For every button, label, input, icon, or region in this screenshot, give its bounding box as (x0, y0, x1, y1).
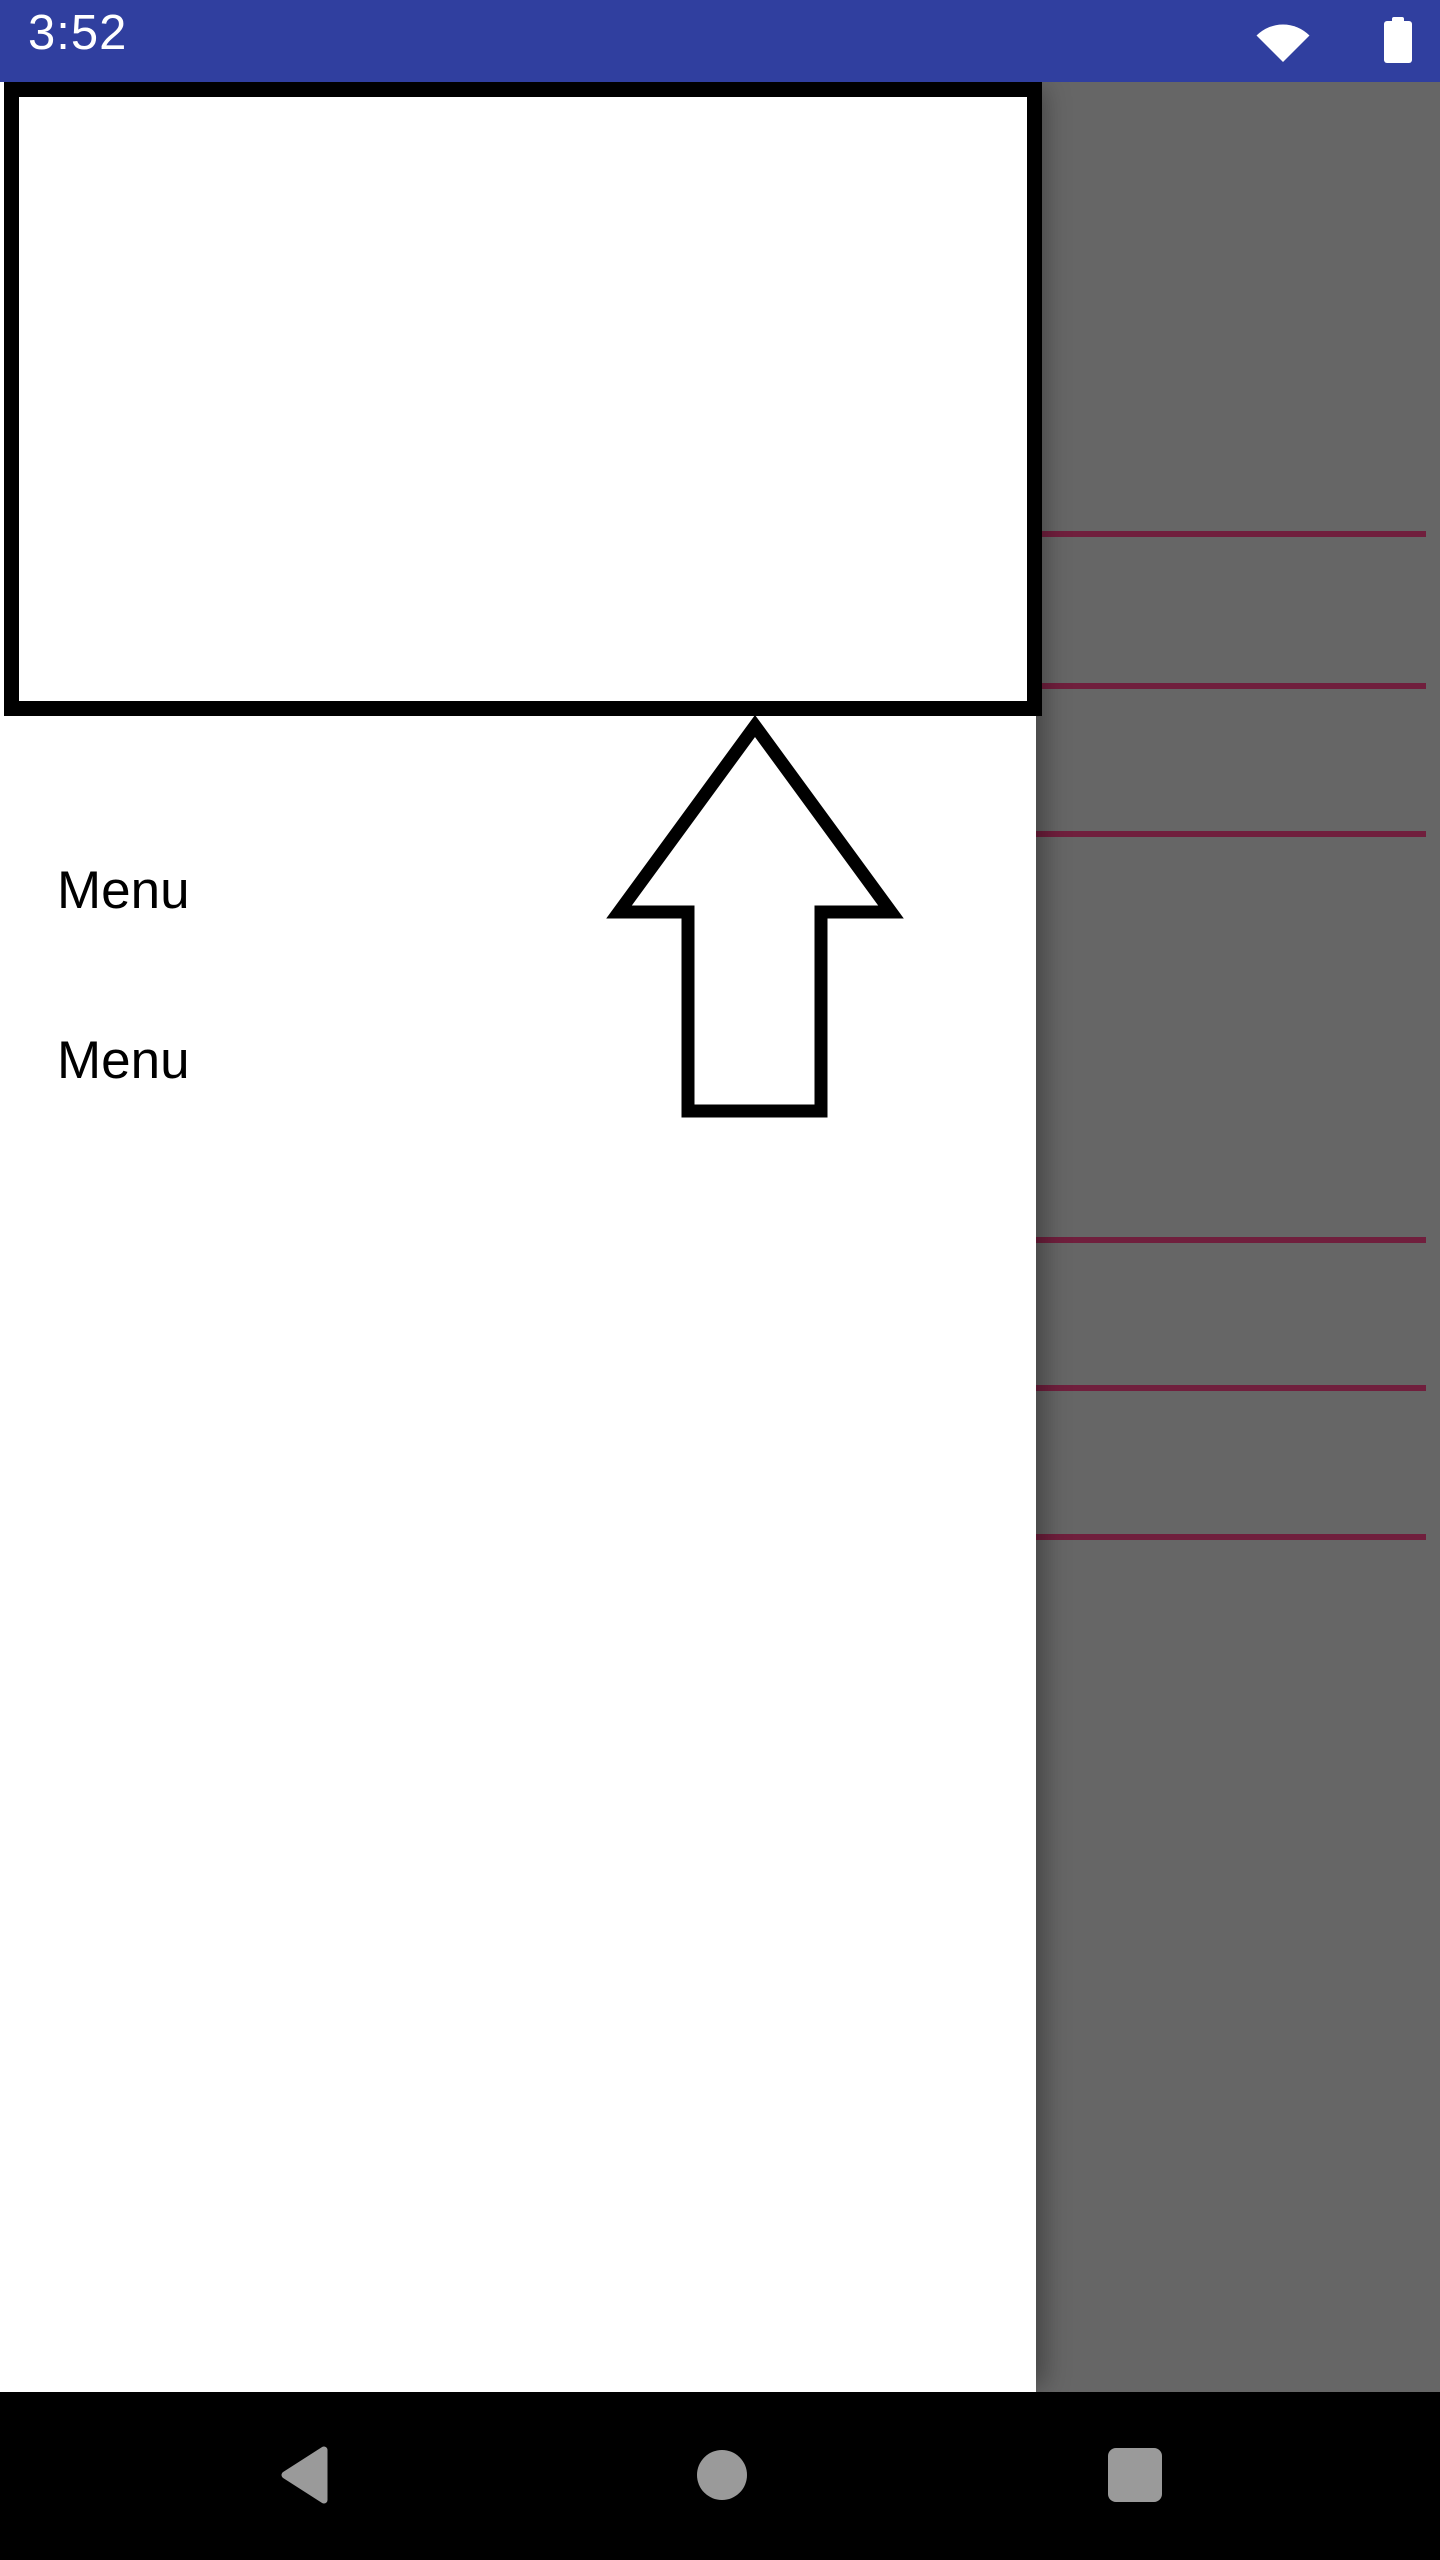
recents-icon (1107, 2447, 1163, 2503)
list-divider-line (1036, 1385, 1426, 1391)
home-icon (696, 2449, 748, 2501)
clock-text: 3:52 (28, 9, 127, 58)
home-button[interactable] (667, 2420, 777, 2530)
up-arrow-graphic (580, 700, 940, 1140)
navigation-bar (0, 2392, 1440, 2560)
list-divider-line (1036, 831, 1426, 837)
list-divider-line (1036, 1237, 1426, 1243)
recents-button[interactable] (1080, 2420, 1190, 2530)
menu-item-label: Menu (57, 1031, 190, 1090)
battery-icon (1384, 17, 1412, 63)
list-divider-line (1036, 1534, 1426, 1540)
drawer-menu-item-2[interactable]: Menu (57, 1033, 190, 1089)
framed-rectangle (4, 82, 1042, 716)
list-divider-line (1036, 683, 1426, 689)
drawer-menu-item-1[interactable]: Menu (57, 863, 190, 919)
list-divider-line (1036, 531, 1426, 537)
status-bar: 3:52 (0, 0, 1440, 82)
menu-item-label: Menu (57, 861, 190, 920)
wifi-icon (1253, 16, 1313, 66)
back-icon (278, 2445, 328, 2505)
back-button[interactable] (248, 2420, 358, 2530)
